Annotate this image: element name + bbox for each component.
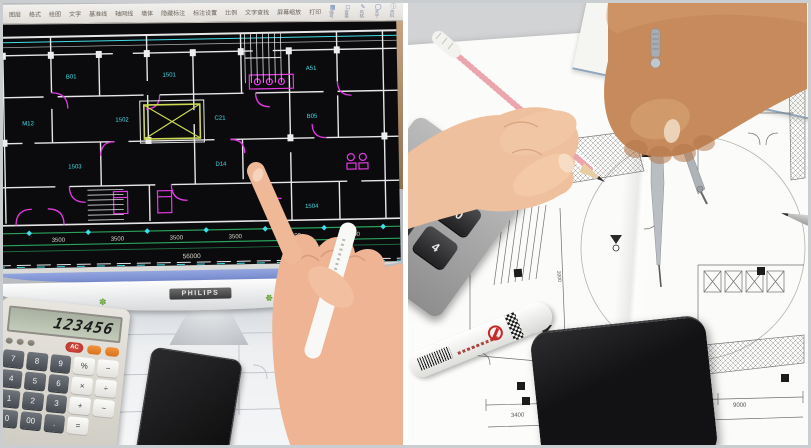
cad-menu-item: 基准线 bbox=[89, 9, 107, 18]
hands-with-tools bbox=[408, 3, 807, 445]
ac-key: AC bbox=[65, 342, 84, 354]
pointing-hand-with-pen bbox=[213, 135, 403, 445]
room-label: 1501 bbox=[162, 72, 176, 78]
cad-menu-item: 屏幕缩放 bbox=[277, 7, 301, 16]
cad-tool-button: ✎风格 bbox=[359, 4, 366, 19]
calc-key: 0 bbox=[3, 409, 18, 428]
corridor-lines bbox=[3, 30, 397, 48]
cad-tool-button: ▦编号 bbox=[329, 4, 336, 19]
calc-key: . bbox=[43, 414, 65, 433]
right-photo-blueprint-work: 3400 9000 30700 2000 0 0 1 4 bbox=[408, 3, 808, 445]
dim-value: 3500 bbox=[52, 238, 66, 244]
cad-menu-item: 隐藏标注 bbox=[161, 8, 185, 17]
compass-hinge bbox=[651, 58, 661, 68]
calc-key: − bbox=[97, 359, 119, 378]
left-photo-cad-monitor: 图层 格式 绘图 文字 基准线 轴网线 墙体 隐藏标注 标注设置 比例 文字查找… bbox=[3, 3, 403, 445]
calc-key: 6 bbox=[47, 374, 69, 393]
room-label: A51 bbox=[306, 66, 317, 72]
cad-menu-item: 格式 bbox=[29, 9, 41, 18]
cad-menu-item: 图层 bbox=[9, 10, 21, 19]
calc-key: × bbox=[71, 376, 93, 395]
cad-menu-item: 标注设置 bbox=[193, 8, 217, 17]
photo-divider bbox=[403, 3, 408, 445]
calc-key: ÷ bbox=[95, 379, 117, 398]
index-finger bbox=[256, 171, 293, 255]
room-label: 1502 bbox=[115, 117, 129, 123]
cad-tool-button: ⓘ资料 bbox=[390, 4, 397, 19]
photo-collage: 图层 格式 绘图 文字 基准线 轴网线 墙体 隐藏标注 标注设置 比例 文字查找… bbox=[0, 0, 811, 448]
room-label: B01 bbox=[66, 74, 77, 80]
cad-menu-item: 打印 bbox=[309, 7, 321, 16]
cad-menu-item: 比例 bbox=[225, 8, 237, 17]
calculator: 123456 AC 7 8 9 % − 4 5 6 × ÷ 1 bbox=[3, 297, 131, 445]
compass-handle bbox=[651, 29, 660, 57]
dim-total: 56000 bbox=[183, 253, 202, 260]
calc-key: 8 bbox=[26, 352, 48, 371]
cad-menu-item: 墙体 bbox=[141, 8, 153, 17]
calc-key: % bbox=[73, 357, 95, 376]
room-label: M12 bbox=[22, 121, 34, 127]
orange-key bbox=[105, 346, 120, 356]
room-label: C21 bbox=[214, 116, 226, 122]
calc-key: 1 bbox=[3, 389, 20, 408]
cad-toolbar: 图层 格式 绘图 文字 基准线 轴网线 墙体 隐藏标注 标注设置 比例 文字查找… bbox=[3, 3, 403, 25]
calc-key: 00 bbox=[19, 411, 41, 430]
calc-key: 2 bbox=[22, 391, 44, 410]
calc-key: + bbox=[69, 396, 91, 415]
cad-tool-button: ◻查看 bbox=[344, 4, 351, 19]
cad-tool-button: ◯关于 bbox=[375, 4, 382, 19]
cad-menu-item: 轴网线 bbox=[115, 9, 133, 18]
memory-key bbox=[5, 337, 13, 344]
orange-key bbox=[87, 344, 102, 354]
calc-key: 9 bbox=[49, 354, 71, 373]
calc-key: 4 bbox=[3, 369, 22, 388]
room-label: 1503 bbox=[68, 164, 82, 170]
calculator-keypad: 7 8 9 % − 4 5 6 × ÷ 1 2 3 + − 0 00 . = bbox=[3, 347, 120, 440]
calc-key: − bbox=[93, 399, 115, 418]
calc-key: 5 bbox=[24, 371, 46, 390]
cad-menu-item: 文字查找 bbox=[245, 7, 269, 16]
calc-key: 3 bbox=[45, 394, 67, 413]
dim-value: 3500 bbox=[111, 236, 125, 242]
memory-key bbox=[16, 338, 24, 345]
dim-value: 3500 bbox=[170, 235, 184, 241]
room-label: B05 bbox=[307, 114, 318, 120]
memory-key bbox=[27, 340, 35, 347]
calc-key: = bbox=[67, 416, 89, 435]
calc-key: 7 bbox=[3, 349, 25, 368]
cad-menu-item: 绘图 bbox=[49, 9, 61, 18]
cad-menu-item: 文字 bbox=[69, 9, 81, 18]
